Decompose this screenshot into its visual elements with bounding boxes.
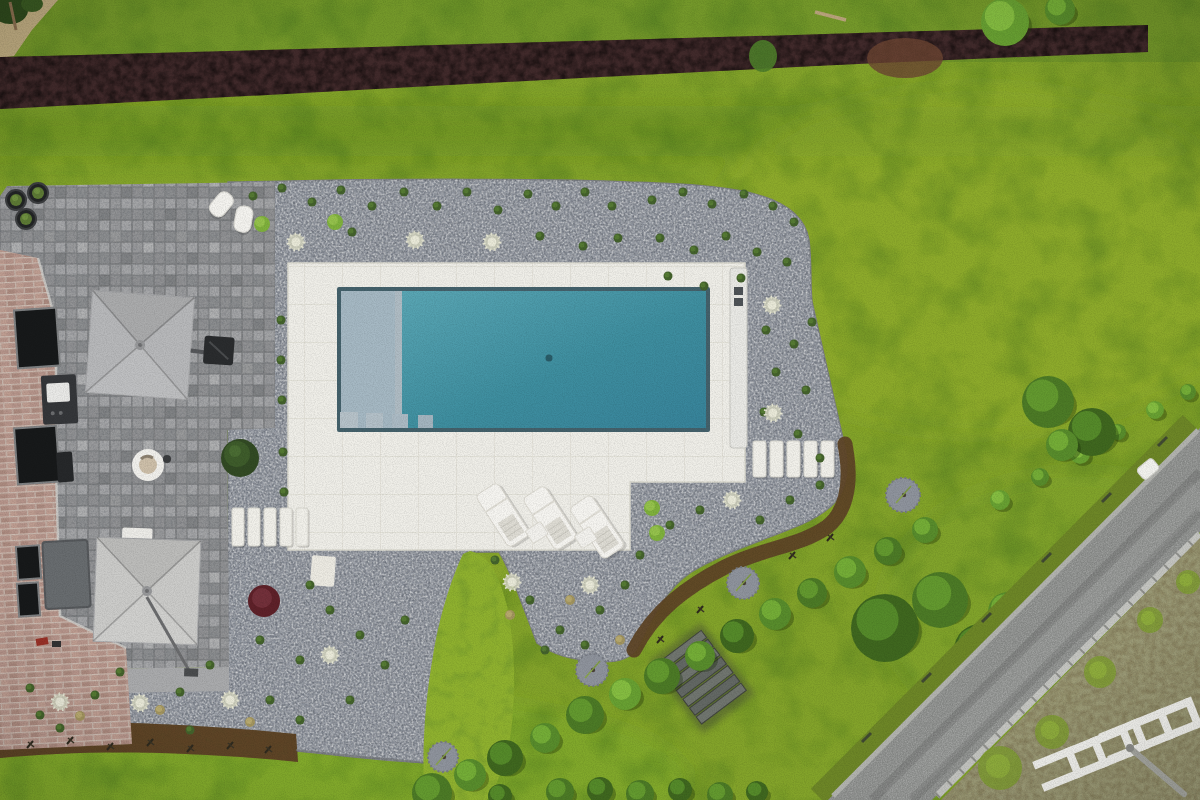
aerial-photo-canvas: Aerial drone photo of a landscaped backy… (0, 0, 1200, 800)
photo-grain (0, 0, 1200, 800)
aerial-backyard-photo: Aerial drone photo of a landscaped backy… (0, 0, 1200, 800)
